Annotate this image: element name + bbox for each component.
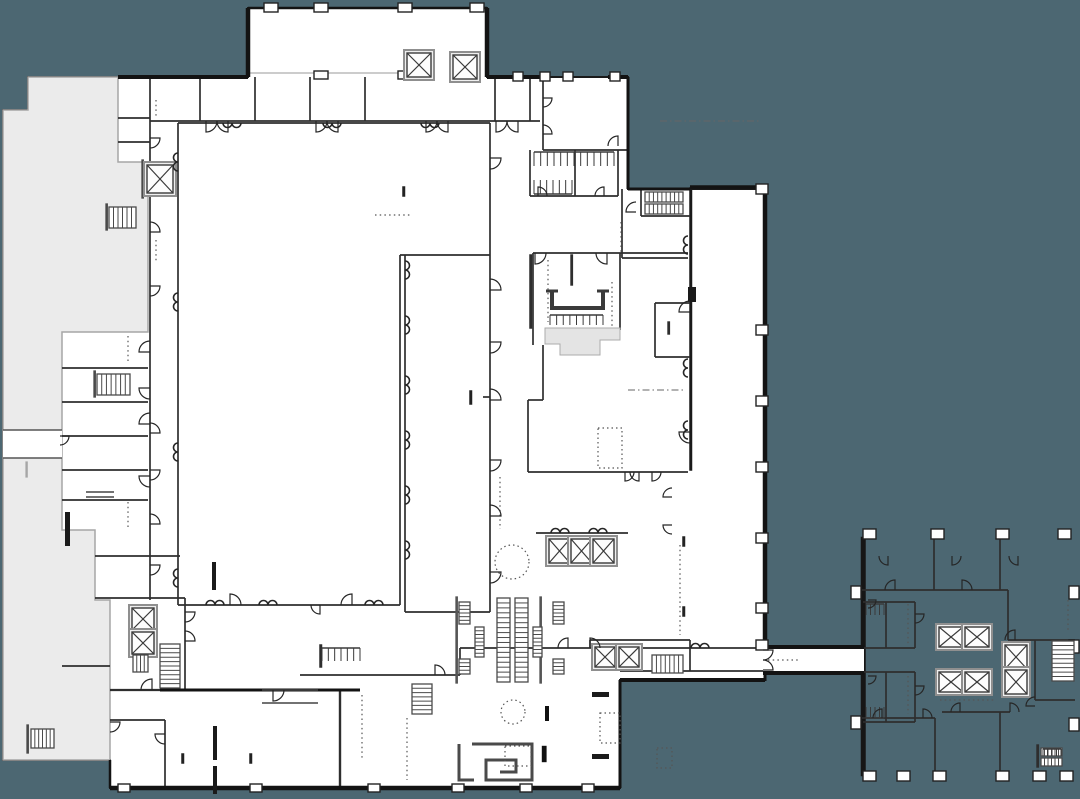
column-marker	[403, 187, 405, 196]
wall-bar	[212, 562, 216, 590]
column-bump	[996, 771, 1009, 781]
column-bump	[1033, 771, 1046, 781]
elevator-icon	[450, 52, 480, 82]
stair-icon	[133, 655, 148, 672]
column-bump	[756, 640, 768, 650]
column-bump	[563, 72, 573, 81]
column-bump	[897, 771, 910, 781]
stair-room	[106, 204, 107, 230]
column-marker	[470, 391, 472, 404]
stair-icon	[1052, 641, 1074, 681]
elevator-icon	[962, 669, 992, 695]
stair-icon	[412, 684, 432, 714]
stair-icon	[652, 655, 683, 673]
door-bar	[688, 287, 696, 302]
column-bump	[118, 784, 130, 792]
stair-icon	[31, 729, 54, 748]
stair-icon	[645, 204, 683, 214]
floor-plan-canvas	[0, 0, 1080, 799]
column-marker	[668, 322, 669, 334]
escalator-icon	[553, 659, 564, 674]
column-bump	[756, 184, 768, 194]
column-bump	[756, 396, 768, 406]
elevator-icon	[144, 162, 176, 196]
column-bump	[513, 72, 523, 81]
column-bump	[264, 3, 278, 12]
column-bump	[452, 784, 464, 792]
escalator-icon	[553, 602, 564, 624]
column-bump	[933, 771, 946, 781]
stair-icon	[97, 374, 130, 395]
elevator-icon	[590, 536, 617, 566]
column-bump	[520, 784, 532, 792]
column-bump	[540, 72, 550, 81]
column-marker	[250, 754, 252, 763]
stage-outline	[530, 255, 532, 328]
gray-zone-corridor	[3, 430, 62, 458]
elevator-icon	[129, 629, 157, 657]
gray-zone-notch	[26, 462, 27, 477]
wall-bar	[213, 726, 217, 760]
wall-bar	[213, 766, 217, 794]
stair-icon	[109, 207, 136, 228]
column-bump	[250, 784, 262, 792]
column-bump	[368, 784, 380, 792]
column-marker	[182, 754, 184, 763]
fixture-box	[546, 707, 548, 720]
room-outline	[320, 645, 322, 667]
stair-icon	[645, 192, 683, 202]
escalator-icon	[475, 627, 484, 657]
column-bump	[863, 529, 876, 539]
column-bump	[863, 771, 876, 781]
escalator-icon	[459, 659, 470, 674]
column-bump	[931, 529, 944, 539]
elevator-icon	[592, 644, 618, 670]
column-bump	[582, 784, 594, 792]
column-bump	[756, 533, 768, 543]
dark-gray-zone	[690, 188, 692, 470]
column-bump	[398, 3, 412, 12]
column-bump	[314, 71, 328, 79]
column-bump	[756, 325, 768, 335]
stair-room	[27, 725, 28, 753]
utility-room	[1037, 745, 1038, 767]
column-bump	[314, 3, 328, 12]
fixture-box	[543, 747, 545, 761]
escalator-icon	[515, 598, 528, 682]
column-bump	[851, 716, 861, 729]
column-bump	[1069, 586, 1079, 599]
stair-room	[94, 371, 95, 397]
floor-plan-svg	[0, 0, 1080, 799]
column-bump	[470, 3, 484, 12]
stair-icon	[160, 644, 180, 688]
escalator-icon	[459, 602, 470, 624]
elevator-icon	[404, 50, 434, 80]
column-bump	[851, 586, 861, 599]
column-bump	[996, 529, 1009, 539]
escalator-icon	[533, 627, 542, 657]
escalator-icon	[497, 598, 510, 682]
escalator-housing	[456, 597, 457, 683]
column-bump	[756, 603, 768, 613]
elevator-icon	[1002, 667, 1030, 697]
column-bump	[756, 462, 768, 472]
column-bump	[610, 72, 620, 81]
elevator-icon	[962, 624, 992, 650]
column-marker	[683, 537, 685, 546]
stage-pedestal	[571, 255, 572, 285]
elevator-icon	[616, 644, 642, 670]
column-marker	[683, 607, 685, 616]
wall-bar	[592, 692, 609, 697]
column-bump	[1069, 718, 1079, 731]
wall-bar	[65, 512, 70, 546]
column-bump	[1058, 529, 1071, 539]
stair-icon	[1041, 758, 1062, 766]
wall-bar	[592, 754, 609, 759]
column-bump	[1060, 771, 1073, 781]
